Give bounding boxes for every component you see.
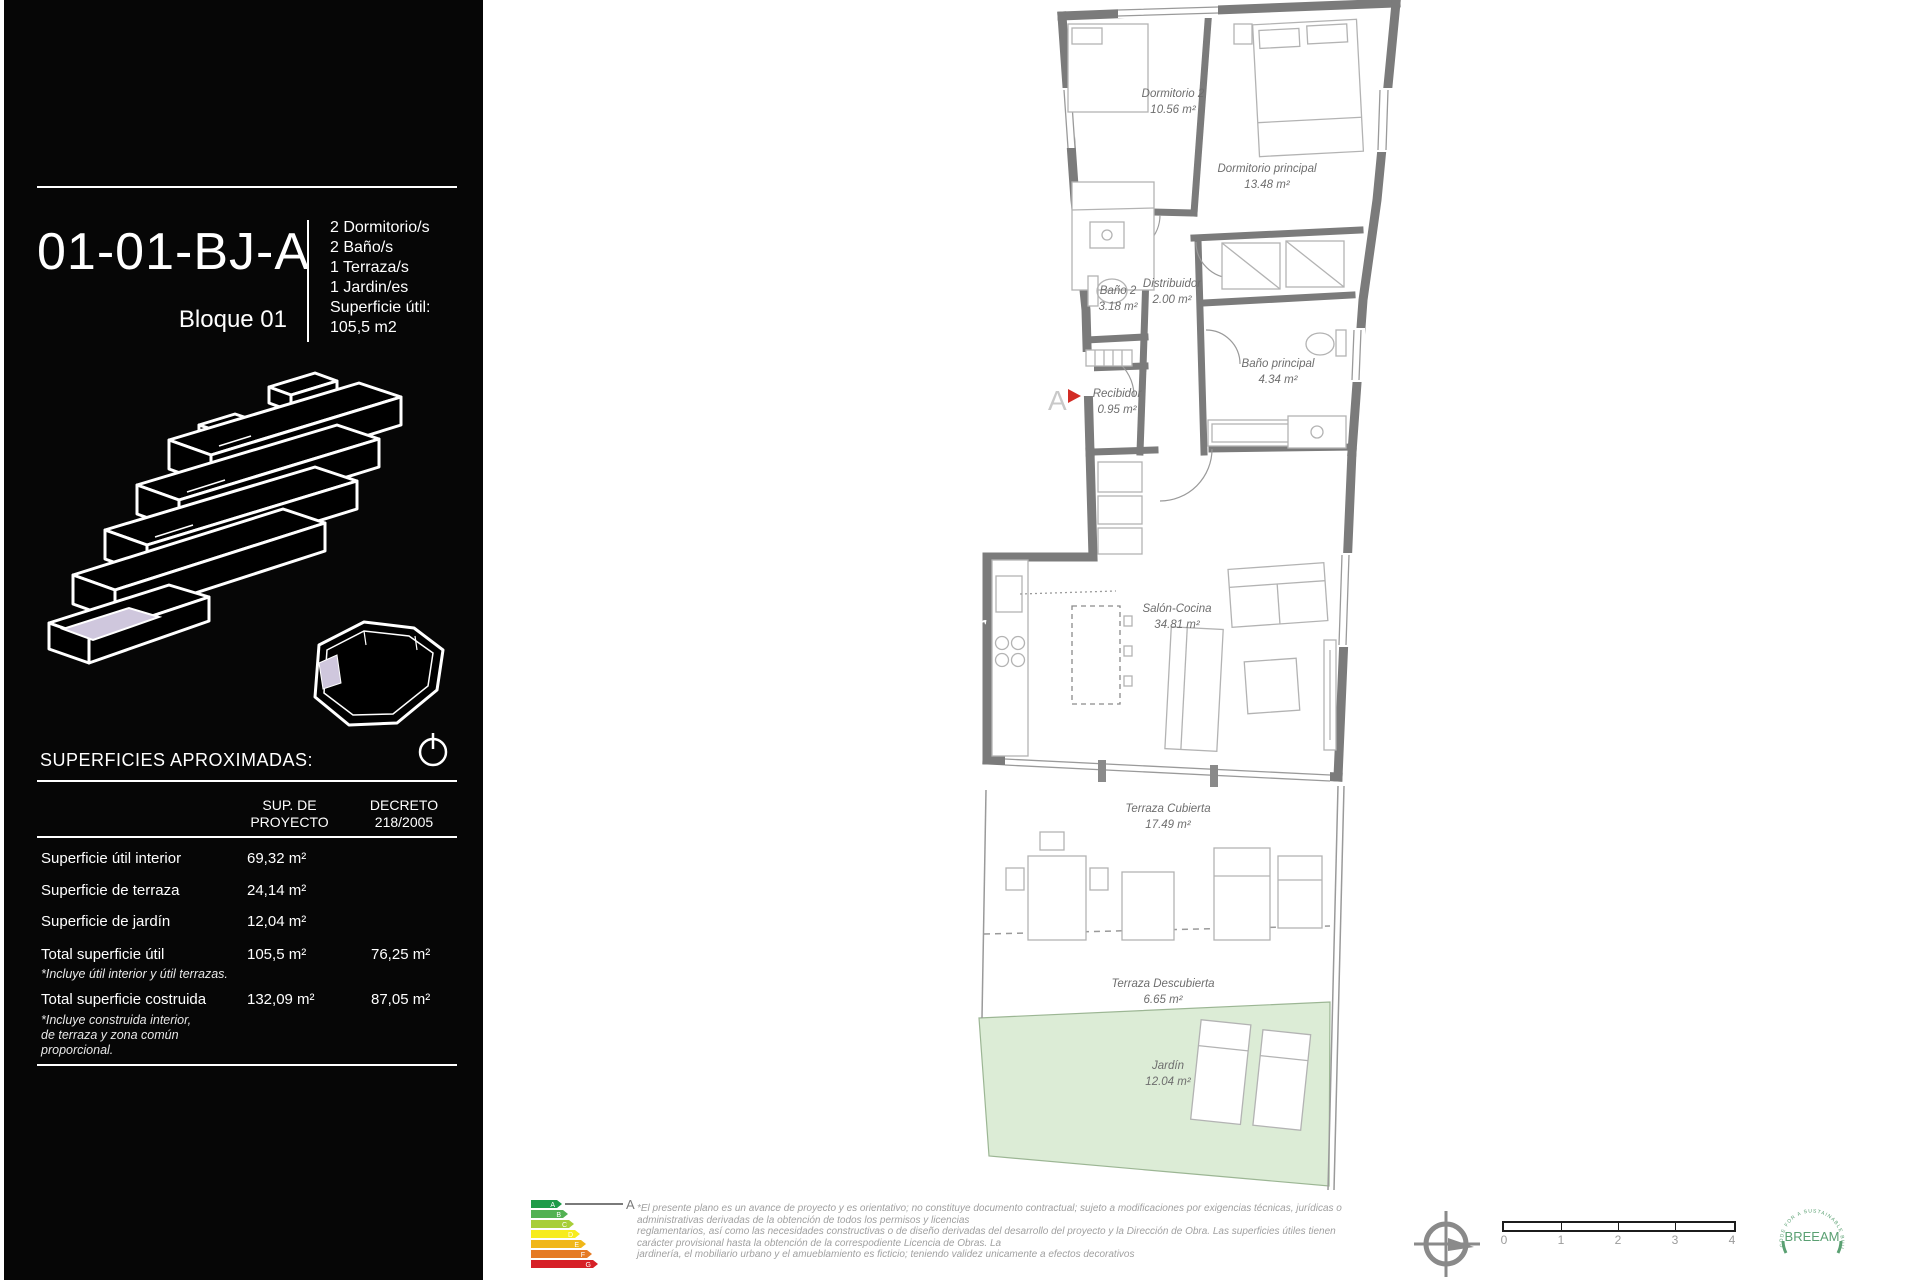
breeam-wordmark: BREEAM [1785, 1229, 1840, 1244]
surfaces-title: SUPERFICIES APROXIMADAS: [40, 750, 313, 771]
entrance-letter: A [1048, 385, 1067, 416]
svg-text:Salón-Cocina34.81 m²: Salón-Cocina34.81 m² [1142, 603, 1211, 631]
row-note: de terraza y zona común [41, 1028, 179, 1042]
svg-text:B: B [556, 1212, 561, 1219]
row-value: 105,5 m² [247, 946, 306, 963]
scale-tick-labels: 0 1 2 3 4 [1496, 1233, 1740, 1247]
svg-text:F: F [581, 1252, 585, 1259]
feature-bathrooms: 2 Baño/s [330, 238, 431, 258]
svg-text:D: D [568, 1232, 573, 1239]
row-value: 76,25 m² [371, 946, 430, 963]
feature-terraces: 1 Terraza/s [330, 258, 431, 278]
orientation-icon [420, 733, 446, 765]
unit-code-title: 01-01-BJ-A [37, 222, 310, 282]
row-label: Total superficie útil [41, 946, 164, 963]
table-header-rule [37, 836, 457, 838]
table-top-rule [37, 780, 457, 782]
svg-text:C: C [562, 1222, 567, 1229]
svg-text:Baño principal4.34 m²: Baño principal4.34 m² [1242, 358, 1315, 386]
row-note: *Incluye útil interior y útil terrazas. [41, 967, 228, 981]
plot-outline-graphic [315, 622, 443, 725]
row-value: 87,05 m² [371, 991, 430, 1008]
vertical-divider [307, 220, 309, 342]
svg-text:A: A [550, 1202, 555, 1209]
compass-icon [1410, 1205, 1500, 1280]
floor-plan: A er rty Dormitorio 210.56 m² Dormitorio… [945, 0, 1455, 1200]
block-label: Bloque 01 [37, 306, 287, 334]
svg-text:Distribuidor2.00 m²: Distribuidor2.00 m² [1143, 278, 1202, 306]
furniture [992, 19, 1363, 1130]
unit-features: 2 Dormitorio/s 2 Baño/s 1 Terraza/s 1 Ja… [330, 218, 431, 338]
row-value: 24,14 m² [247, 882, 306, 899]
row-value: 132,09 m² [247, 991, 315, 1008]
breeam-logo: CODE FOR A SUSTAINABLE BUILT ENVIRONMENT… [1770, 1193, 1854, 1279]
entrance-marker: A [1048, 385, 1081, 416]
svg-text:Recibidor0.95 m²: Recibidor0.95 m² [1093, 388, 1143, 416]
row-note: *Incluye construida interior, [41, 1013, 191, 1027]
useful-area-value: 105,5 m2 [330, 318, 431, 338]
svg-text:Dormitorio 210.56 m²: Dormitorio 210.56 m² [1142, 88, 1205, 116]
row-note: proporcional. [41, 1043, 113, 1057]
energy-rating-icon: A B C D E F G A [527, 1196, 639, 1276]
building-isometric-graphic [19, 345, 469, 775]
entrance-arrow-icon [1068, 389, 1081, 403]
row-value: 69,32 m² [247, 850, 306, 867]
feature-bedrooms: 2 Dormitorio/s [330, 218, 431, 238]
table-bottom-rule [37, 1064, 457, 1066]
row-label: Total superficie costruida [41, 991, 206, 1008]
info-panel: 01-01-BJ-A Bloque 01 2 Dormitorio/s 2 Ba… [4, 0, 483, 1280]
row-value: 12,04 m² [247, 913, 306, 930]
row-label: Superficie de terraza [41, 882, 179, 899]
svg-text:Baño 23.18 m²: Baño 23.18 m² [1099, 285, 1139, 313]
scale-bar [1502, 1221, 1736, 1232]
row-label: Superficie de jardín [41, 913, 170, 930]
svg-text:Terraza Cubierta17.49 m²: Terraza Cubierta17.49 m² [1125, 803, 1210, 831]
svg-text:E: E [574, 1242, 579, 1249]
useful-area-label: Superficie útil: [330, 298, 431, 318]
feature-gardens: 1 Jardin/es [330, 278, 431, 298]
svg-text:G: G [586, 1262, 591, 1269]
col-header-decreto: DECRETO 218/2005 [354, 797, 454, 831]
watermark-text: rty [948, 639, 977, 668]
row-label: Superficie útil interior [41, 850, 181, 867]
divider-line [37, 186, 457, 188]
energy-pointer-label: A [626, 1197, 635, 1212]
svg-text:Terraza Descubierta6.65 m²: Terraza Descubierta6.65 m² [1111, 978, 1214, 1006]
disclaimer-text: *El presente plano es un avance de proye… [637, 1203, 1417, 1261]
svg-text:Dormitorio principal13.48 m²: Dormitorio principal13.48 m² [1217, 163, 1317, 191]
col-header-proyecto: SUP. DE PROYECTO [237, 797, 342, 831]
